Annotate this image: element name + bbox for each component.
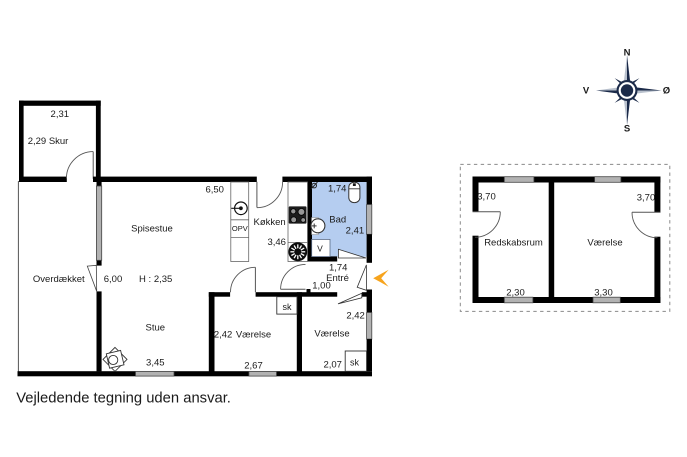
svg-text:N: N (624, 47, 631, 58)
svg-text:3,70: 3,70 (637, 193, 656, 204)
svg-text:Værelse: Værelse (587, 238, 622, 249)
svg-text:2,31: 2,31 (51, 109, 70, 120)
svg-text:V: V (583, 85, 590, 96)
svg-text:sk: sk (283, 302, 293, 312)
svg-text:3,45: 3,45 (146, 357, 165, 368)
svg-text:Overdækket: Overdækket (33, 274, 85, 285)
svg-text:OPV: OPV (232, 224, 248, 233)
svg-text:Stue: Stue (146, 323, 166, 334)
svg-text:1,74: 1,74 (328, 184, 347, 195)
svg-text:Spisestue: Spisestue (131, 224, 173, 235)
svg-text:3,46: 3,46 (267, 237, 286, 248)
svg-text:1,00: 1,00 (312, 281, 331, 292)
svg-text:Bad: Bad (329, 215, 346, 226)
svg-text:Værelse: Værelse (236, 330, 271, 341)
svg-text:2,42: 2,42 (214, 330, 233, 341)
svg-text:V: V (317, 243, 323, 253)
svg-text:Redskabsrum: Redskabsrum (484, 238, 543, 249)
svg-text:2,42: 2,42 (346, 310, 365, 321)
svg-text:3,70: 3,70 (477, 192, 496, 203)
svg-text:6,00: 6,00 (104, 274, 123, 285)
svg-text:2,41: 2,41 (346, 226, 365, 237)
svg-text:sk: sk (350, 358, 360, 368)
svg-text:2,30: 2,30 (506, 288, 525, 299)
svg-text:Vejledende tegning uden ansvar: Vejledende tegning uden ansvar. (16, 391, 231, 407)
svg-text:H : 2,35: H : 2,35 (139, 274, 172, 285)
svg-text:1,74: 1,74 (329, 262, 348, 273)
svg-text:2,67: 2,67 (244, 360, 263, 371)
svg-text:2,07: 2,07 (323, 360, 342, 371)
svg-text:Køkken: Køkken (253, 217, 285, 228)
svg-text:6,50: 6,50 (205, 185, 224, 196)
svg-text:3,30: 3,30 (594, 288, 613, 299)
svg-text:2,29 Skur: 2,29 Skur (28, 136, 69, 147)
svg-text:Ø: Ø (663, 85, 670, 96)
svg-text:Værelse: Værelse (314, 329, 349, 340)
svg-text:S: S (624, 123, 630, 134)
